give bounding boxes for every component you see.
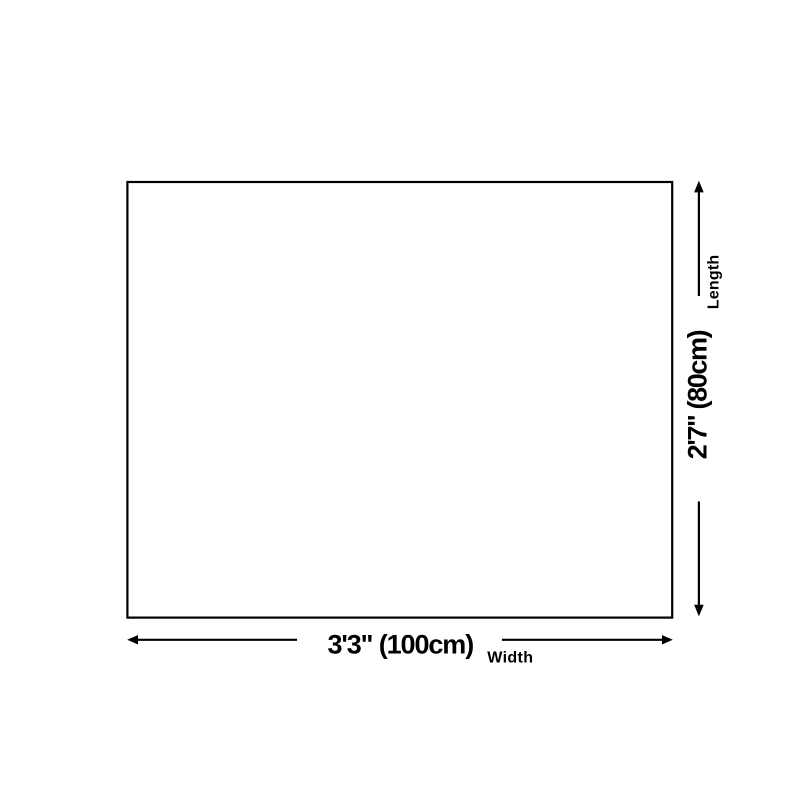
svg-text:3'3" (100cm): 3'3" (100cm): [327, 630, 473, 660]
svg-text:Width: Width: [487, 650, 533, 667]
svg-text:Length: Length: [706, 255, 723, 310]
svg-text:2'7" (80cm): 2'7" (80cm): [683, 330, 713, 459]
